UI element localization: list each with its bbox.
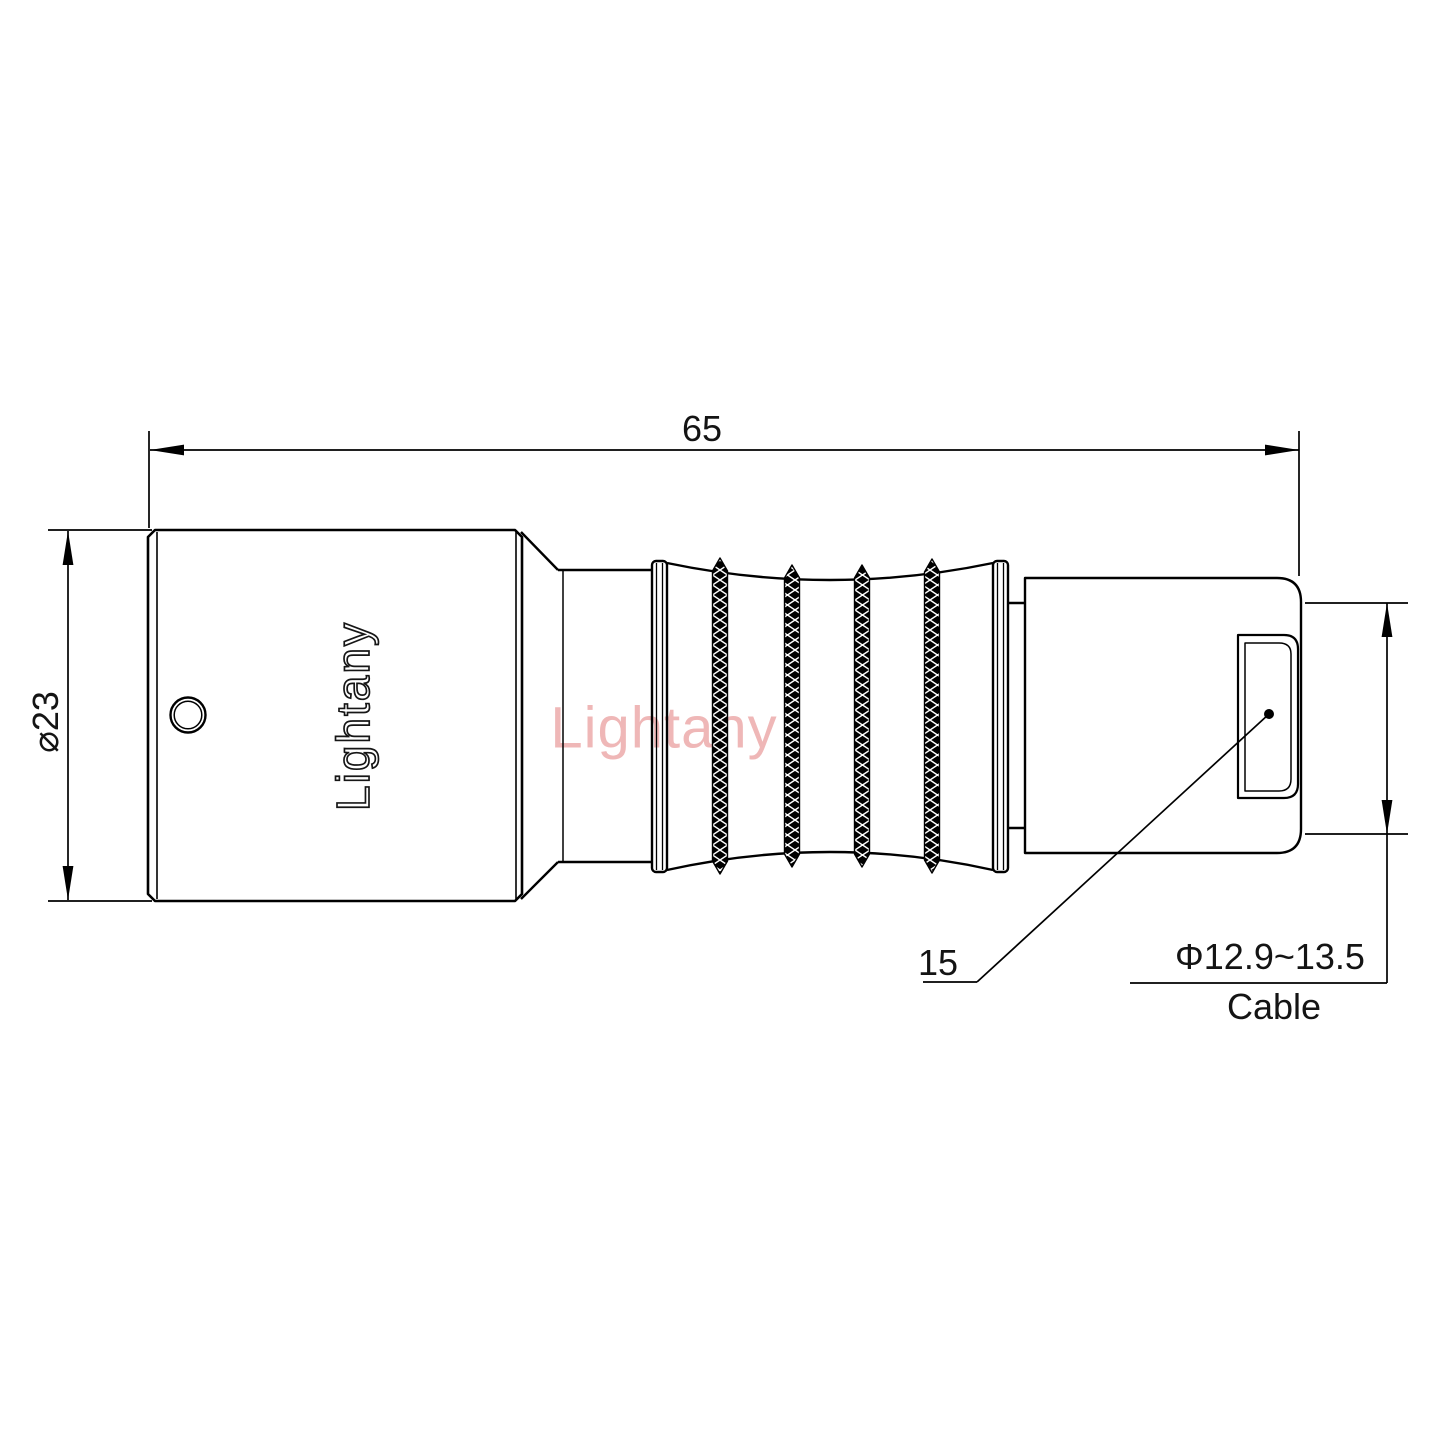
cable-nut bbox=[1008, 578, 1301, 853]
arrowhead bbox=[1382, 800, 1393, 834]
drawing-lines bbox=[0, 0, 1440, 1440]
arrowhead bbox=[1382, 603, 1393, 637]
arrowhead bbox=[1265, 445, 1299, 456]
knurled-grip bbox=[652, 558, 1008, 874]
knurl-band bbox=[785, 565, 800, 867]
arrowhead bbox=[150, 445, 184, 456]
cable-caption: Cable bbox=[1227, 989, 1321, 1025]
body-engraving-brand: Lightany bbox=[326, 621, 380, 811]
knurl-bands bbox=[713, 558, 940, 874]
dimension-total-length bbox=[149, 431, 1299, 576]
dimension-cable-diameter bbox=[1130, 603, 1408, 983]
technical-drawing-connector: Lightany bbox=[0, 0, 1440, 1440]
dimension-label-total-length: 65 bbox=[682, 411, 722, 447]
arrowhead bbox=[63, 866, 74, 900]
leader-dot bbox=[1264, 709, 1274, 719]
dimension-label-cable-diameter: Φ12.9~13.5 bbox=[1175, 939, 1365, 975]
positioning-hole bbox=[171, 698, 206, 733]
arrowhead bbox=[63, 531, 74, 565]
knurl-band bbox=[855, 565, 870, 867]
knurl-band bbox=[925, 559, 940, 873]
knurl-band bbox=[713, 558, 728, 874]
dimension-label-rear-length: 15 bbox=[918, 945, 958, 981]
body-taper-section bbox=[521, 532, 652, 899]
dimension-label-body-diameter: ⌀23 bbox=[28, 691, 64, 753]
